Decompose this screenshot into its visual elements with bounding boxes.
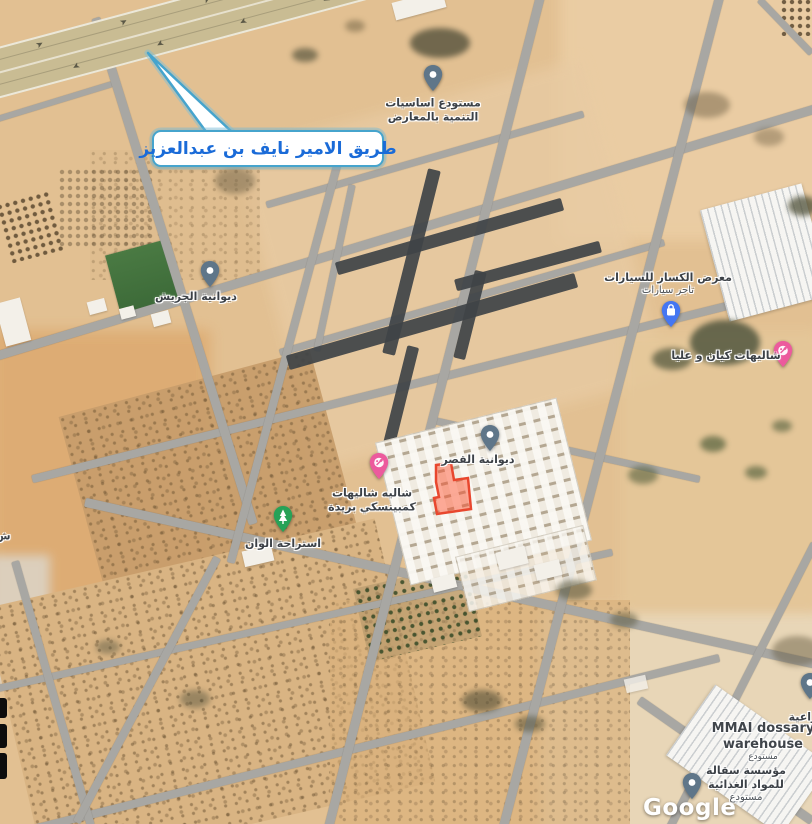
terrain-feature bbox=[151, 310, 172, 327]
terrain-feature bbox=[515, 716, 545, 732]
terrain-feature bbox=[684, 92, 730, 118]
bag-pin-icon[interactable] bbox=[660, 300, 682, 328]
marker-label-diwaniyat-aljarish: ديوانية الجريش bbox=[155, 290, 237, 304]
terrain-feature bbox=[556, 580, 592, 600]
dot-pin-icon[interactable] bbox=[199, 260, 221, 288]
terrain-feature bbox=[345, 20, 365, 32]
map-text-mmai-warehouse: MMAI dossarywarehouseمستودع bbox=[712, 721, 812, 763]
marker-label-istiraha-alwan: استراحة الوان bbox=[245, 537, 321, 551]
terrain-feature bbox=[462, 690, 502, 712]
road-name-text: طريق الامير نايف بن عبدالعزيز bbox=[139, 139, 396, 159]
lane-arrow-icon: ➤ bbox=[321, 0, 332, 4]
marker-label-chalets-kayan: شاليهات كيان و عليا bbox=[671, 349, 780, 363]
lane-arrow-icon: ➤ bbox=[154, 37, 165, 49]
highway-arrows: ➤➤➤➤➤➤➤➤➤➤ bbox=[0, 0, 369, 74]
road-name-callout: طريق الامير نايف بن عبدالعزيز bbox=[152, 130, 384, 167]
dot-pin-icon[interactable] bbox=[479, 424, 501, 452]
terrain-feature bbox=[87, 298, 108, 315]
terrain-feature bbox=[215, 168, 255, 194]
terrain-feature bbox=[754, 128, 784, 146]
marker-label-diwaniyat-alqasr: ديوانية القصر bbox=[441, 453, 514, 467]
marker-label-mustawda-asasiyat: مستودع اساسياتالتنمية بالمعارض bbox=[385, 96, 481, 124]
terrain-feature bbox=[628, 466, 658, 484]
terrain-feature bbox=[0, 190, 64, 264]
map-text-partial-sheen: ش bbox=[0, 529, 11, 542]
edge-text-fragment bbox=[0, 753, 7, 779]
terrain-feature bbox=[96, 640, 120, 654]
lane-arrow-icon: ➤ bbox=[237, 14, 248, 26]
terrain-feature bbox=[745, 466, 767, 479]
resort-pin-icon[interactable] bbox=[368, 452, 390, 480]
dot-pin-icon[interactable] bbox=[799, 672, 812, 700]
terrain-feature bbox=[700, 436, 726, 452]
tree-pin-icon[interactable] bbox=[272, 505, 294, 533]
terrain-feature bbox=[0, 0, 375, 97]
dot-pin-icon[interactable] bbox=[422, 64, 444, 92]
terrain-feature bbox=[392, 0, 447, 20]
satellite-map[interactable]: ➤➤➤➤➤➤➤➤➤➤ bbox=[0, 0, 812, 824]
terrain-feature bbox=[610, 612, 638, 628]
terrain-feature bbox=[788, 196, 812, 216]
terrain-feature bbox=[180, 690, 210, 708]
map-text-partial-raaiya: راعية bbox=[789, 710, 812, 723]
lane-arrow-icon: ➤ bbox=[70, 59, 81, 71]
terrain-feature bbox=[0, 0, 378, 108]
edge-text-fragment bbox=[0, 724, 7, 748]
terrain-feature bbox=[772, 420, 792, 432]
terrain-feature bbox=[410, 28, 470, 58]
marker-label-maarad-alkassar: معرض الكسار للسياراتتاجر سيارات bbox=[604, 271, 732, 297]
terrain-feature bbox=[0, 297, 31, 346]
marker-label-chalets-kempinski: شاليه شاليهاتكمبينسكي بريدة bbox=[328, 486, 416, 514]
terrain-feature bbox=[58, 168, 153, 248]
lane-arrow-icon: ➤ bbox=[202, 0, 213, 6]
terrain-feature bbox=[292, 48, 318, 62]
edge-text-fragment bbox=[0, 698, 7, 718]
terrain-feature bbox=[0, 0, 372, 85]
google-logo[interactable]: Google bbox=[643, 795, 736, 821]
